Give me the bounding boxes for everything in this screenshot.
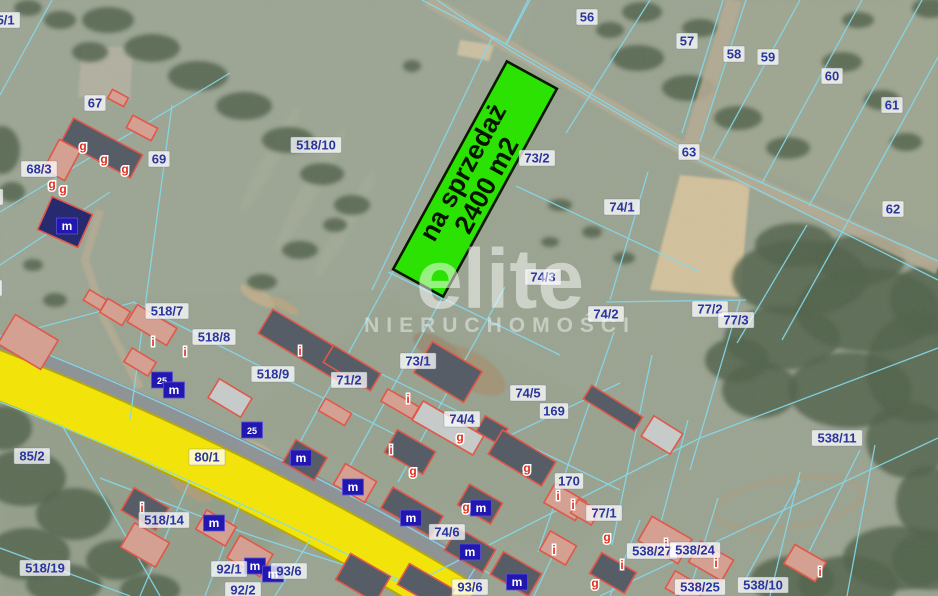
parcel-label: 58 bbox=[723, 46, 745, 62]
parcel-label: 71/2 bbox=[331, 372, 367, 388]
parcel-number: 60 bbox=[825, 69, 839, 84]
parcel-label: 169 bbox=[540, 403, 569, 419]
building-use-letter: g bbox=[456, 430, 463, 444]
parcel-number: 58 bbox=[727, 47, 741, 62]
parcel-label: 538/24 bbox=[670, 542, 721, 558]
parcel-number: 538/11 bbox=[817, 431, 856, 446]
building-use-letter: i bbox=[556, 489, 559, 503]
parcel-number: 68/3 bbox=[26, 162, 51, 177]
parcel-label: 73/2 bbox=[519, 150, 555, 166]
building-marker-icon: m bbox=[507, 574, 528, 590]
parcel-number: 538/10 bbox=[743, 578, 783, 593]
building-use-letter: g bbox=[409, 464, 416, 478]
parcel-label: 57 bbox=[676, 33, 698, 49]
parcel-label: 56 bbox=[576, 9, 598, 25]
parcel-label: 518/9 bbox=[251, 366, 295, 382]
parcel-label: 67 bbox=[84, 95, 106, 111]
building-use-letter: g bbox=[121, 162, 128, 176]
parcel-number: 518/14 bbox=[144, 513, 185, 528]
parcel-number: 518/10 bbox=[296, 138, 336, 153]
parcel-label: 93/6 bbox=[271, 563, 307, 579]
building-use-letter: i bbox=[389, 443, 392, 457]
building-marker-glyph: m bbox=[169, 383, 180, 397]
parcel-number: 74/1 bbox=[609, 200, 634, 215]
parcel-number: 93/6 bbox=[457, 580, 482, 595]
parcel-number: 93/6 bbox=[276, 564, 301, 579]
parcel-number: 73/1 bbox=[405, 354, 430, 369]
parcel-number: 67 bbox=[88, 96, 102, 111]
parcel-number: 92/2 bbox=[230, 583, 255, 596]
parcel-label: 74/1 bbox=[604, 199, 640, 215]
parcel-label: 73/1 bbox=[400, 353, 436, 369]
parcel-number: 56 bbox=[580, 10, 594, 25]
parcel-label: 518/10 bbox=[291, 137, 342, 153]
parcel-label: 80/1 bbox=[189, 449, 225, 465]
building-use-letter: i bbox=[818, 565, 821, 579]
parcel-label: 518/14 bbox=[139, 512, 190, 528]
parcel-label: 74/6 bbox=[429, 524, 465, 540]
parcel-number: 518/19 bbox=[25, 561, 65, 576]
building-marker-icon: m bbox=[164, 382, 185, 398]
parcel-number: 518/7 bbox=[151, 304, 184, 319]
parcel-number: 518/9 bbox=[257, 367, 290, 382]
parcel-number: 59 bbox=[761, 50, 775, 65]
parcel-number: 80/1 bbox=[194, 450, 219, 465]
building-marker-glyph: m bbox=[476, 501, 487, 515]
building-use-letter: i bbox=[406, 392, 409, 406]
parcel-label: 63 bbox=[678, 144, 700, 160]
building-use-letter: i bbox=[298, 344, 301, 358]
parcel-number: 92/1 bbox=[216, 562, 241, 577]
parcel-number: 169 bbox=[543, 404, 565, 419]
parcel-label: 538/25 bbox=[675, 579, 726, 595]
parcel-label: 0 bbox=[0, 280, 2, 296]
parcel-label: 92/2 bbox=[225, 582, 261, 596]
parcel-number: 73/2 bbox=[524, 151, 549, 166]
building-use-letter: i bbox=[552, 543, 555, 557]
building-use-letter: g bbox=[48, 177, 55, 191]
building-marker-icon: 25 bbox=[242, 422, 263, 438]
watermark-subtitle: NIERUCHOMOŚCI bbox=[364, 313, 636, 337]
building-marker-glyph: m bbox=[512, 575, 523, 589]
parcel-label: 93/6 bbox=[452, 579, 488, 595]
building-marker-icon: m bbox=[401, 510, 422, 526]
parcel-number: 61 bbox=[885, 98, 899, 113]
parcel-number: 170 bbox=[558, 474, 580, 489]
parcel-label: 69 bbox=[148, 151, 170, 167]
map-canvas: na sprzedaż2400 m2 m25m25mmmmmmmmm ggggg… bbox=[0, 0, 938, 596]
parcel-label: 92/1 bbox=[211, 561, 247, 577]
aerial-cadastral-map: na sprzedaż2400 m2 m25m25mmmmmmmmm ggggg… bbox=[0, 0, 938, 596]
parcel-number: 85/2 bbox=[19, 449, 44, 464]
building-use-letter: i bbox=[183, 345, 186, 359]
parcel-number: 77/1 bbox=[591, 506, 616, 521]
parcel-label: 59 bbox=[757, 49, 779, 65]
parcel-number: 74/5 bbox=[515, 386, 540, 401]
parcel-number: 69 bbox=[152, 152, 166, 167]
parcel-number: 63 bbox=[682, 145, 696, 160]
building-marker-icon: m bbox=[204, 515, 225, 531]
parcel-label: 518/19 bbox=[20, 560, 71, 576]
building-use-letter: g bbox=[603, 530, 610, 544]
parcel-number: 538/24 bbox=[675, 543, 716, 558]
building-use-letter: g bbox=[59, 182, 66, 196]
parcel-label: 68/3 bbox=[21, 161, 57, 177]
parcel-label: 538/11 bbox=[812, 430, 863, 446]
parcel-label: 61 bbox=[881, 97, 903, 113]
building-use-letter: g bbox=[462, 500, 469, 514]
parcel-number: 538/27 bbox=[632, 544, 672, 559]
parcel-label: 518/8 bbox=[192, 329, 236, 345]
building-use-letter: i bbox=[151, 335, 154, 349]
building-marker-glyph: m bbox=[348, 480, 359, 494]
parcel-label: 62 bbox=[882, 201, 904, 217]
parcel-number: 74/6 bbox=[434, 525, 459, 540]
building-marker-icon: m bbox=[291, 450, 312, 466]
parcel-number: 65/1 bbox=[0, 13, 15, 28]
parcel-number: 518/8 bbox=[198, 330, 231, 345]
building-use-letter: g bbox=[523, 461, 530, 475]
parcel-label: 2 bbox=[0, 189, 3, 205]
parcel-number: 538/25 bbox=[680, 580, 720, 595]
parcel-number: 74/4 bbox=[449, 412, 475, 427]
building-marker-icon: m bbox=[471, 500, 492, 516]
building-marker-glyph: m bbox=[209, 516, 220, 530]
parcel-label: 77/3 bbox=[718, 312, 754, 328]
building-marker-icon: m bbox=[460, 544, 481, 560]
watermark-brand: elite bbox=[416, 232, 584, 326]
building-use-letter: i bbox=[620, 558, 623, 572]
parcel-number: 77/3 bbox=[723, 313, 748, 328]
parcel-label: 60 bbox=[821, 68, 843, 84]
parcel-label: 85/2 bbox=[14, 448, 50, 464]
parcel-label: 74/5 bbox=[510, 385, 546, 401]
parcel-label: 77/1 bbox=[586, 505, 622, 521]
building-marker-icon: m bbox=[343, 479, 364, 495]
parcel-label: 74/4 bbox=[444, 411, 480, 427]
building-marker-glyph: m bbox=[250, 559, 261, 573]
building-marker-glyph: m bbox=[465, 545, 476, 559]
parcel-number: 57 bbox=[680, 34, 694, 49]
parcel-number: 71/2 bbox=[336, 373, 361, 388]
building-marker-glyph: m bbox=[406, 511, 417, 525]
building-marker-icon: m bbox=[57, 218, 78, 234]
building-use-letter: g bbox=[100, 152, 107, 166]
building-marker-glyph: m bbox=[62, 219, 73, 233]
building-marker-glyph: 25 bbox=[247, 426, 257, 436]
building-use-letter: i bbox=[571, 498, 574, 512]
parcel-label: 65/1 bbox=[0, 12, 20, 28]
parcel-label: 538/10 bbox=[738, 577, 789, 593]
building-use-letter: g bbox=[591, 576, 598, 590]
parcel-number: 62 bbox=[886, 202, 900, 217]
parcel-label: 170 bbox=[555, 473, 584, 489]
parcel-label: 518/7 bbox=[145, 303, 189, 319]
building-use-letter: g bbox=[79, 139, 86, 153]
building-marker-glyph: m bbox=[296, 451, 307, 465]
